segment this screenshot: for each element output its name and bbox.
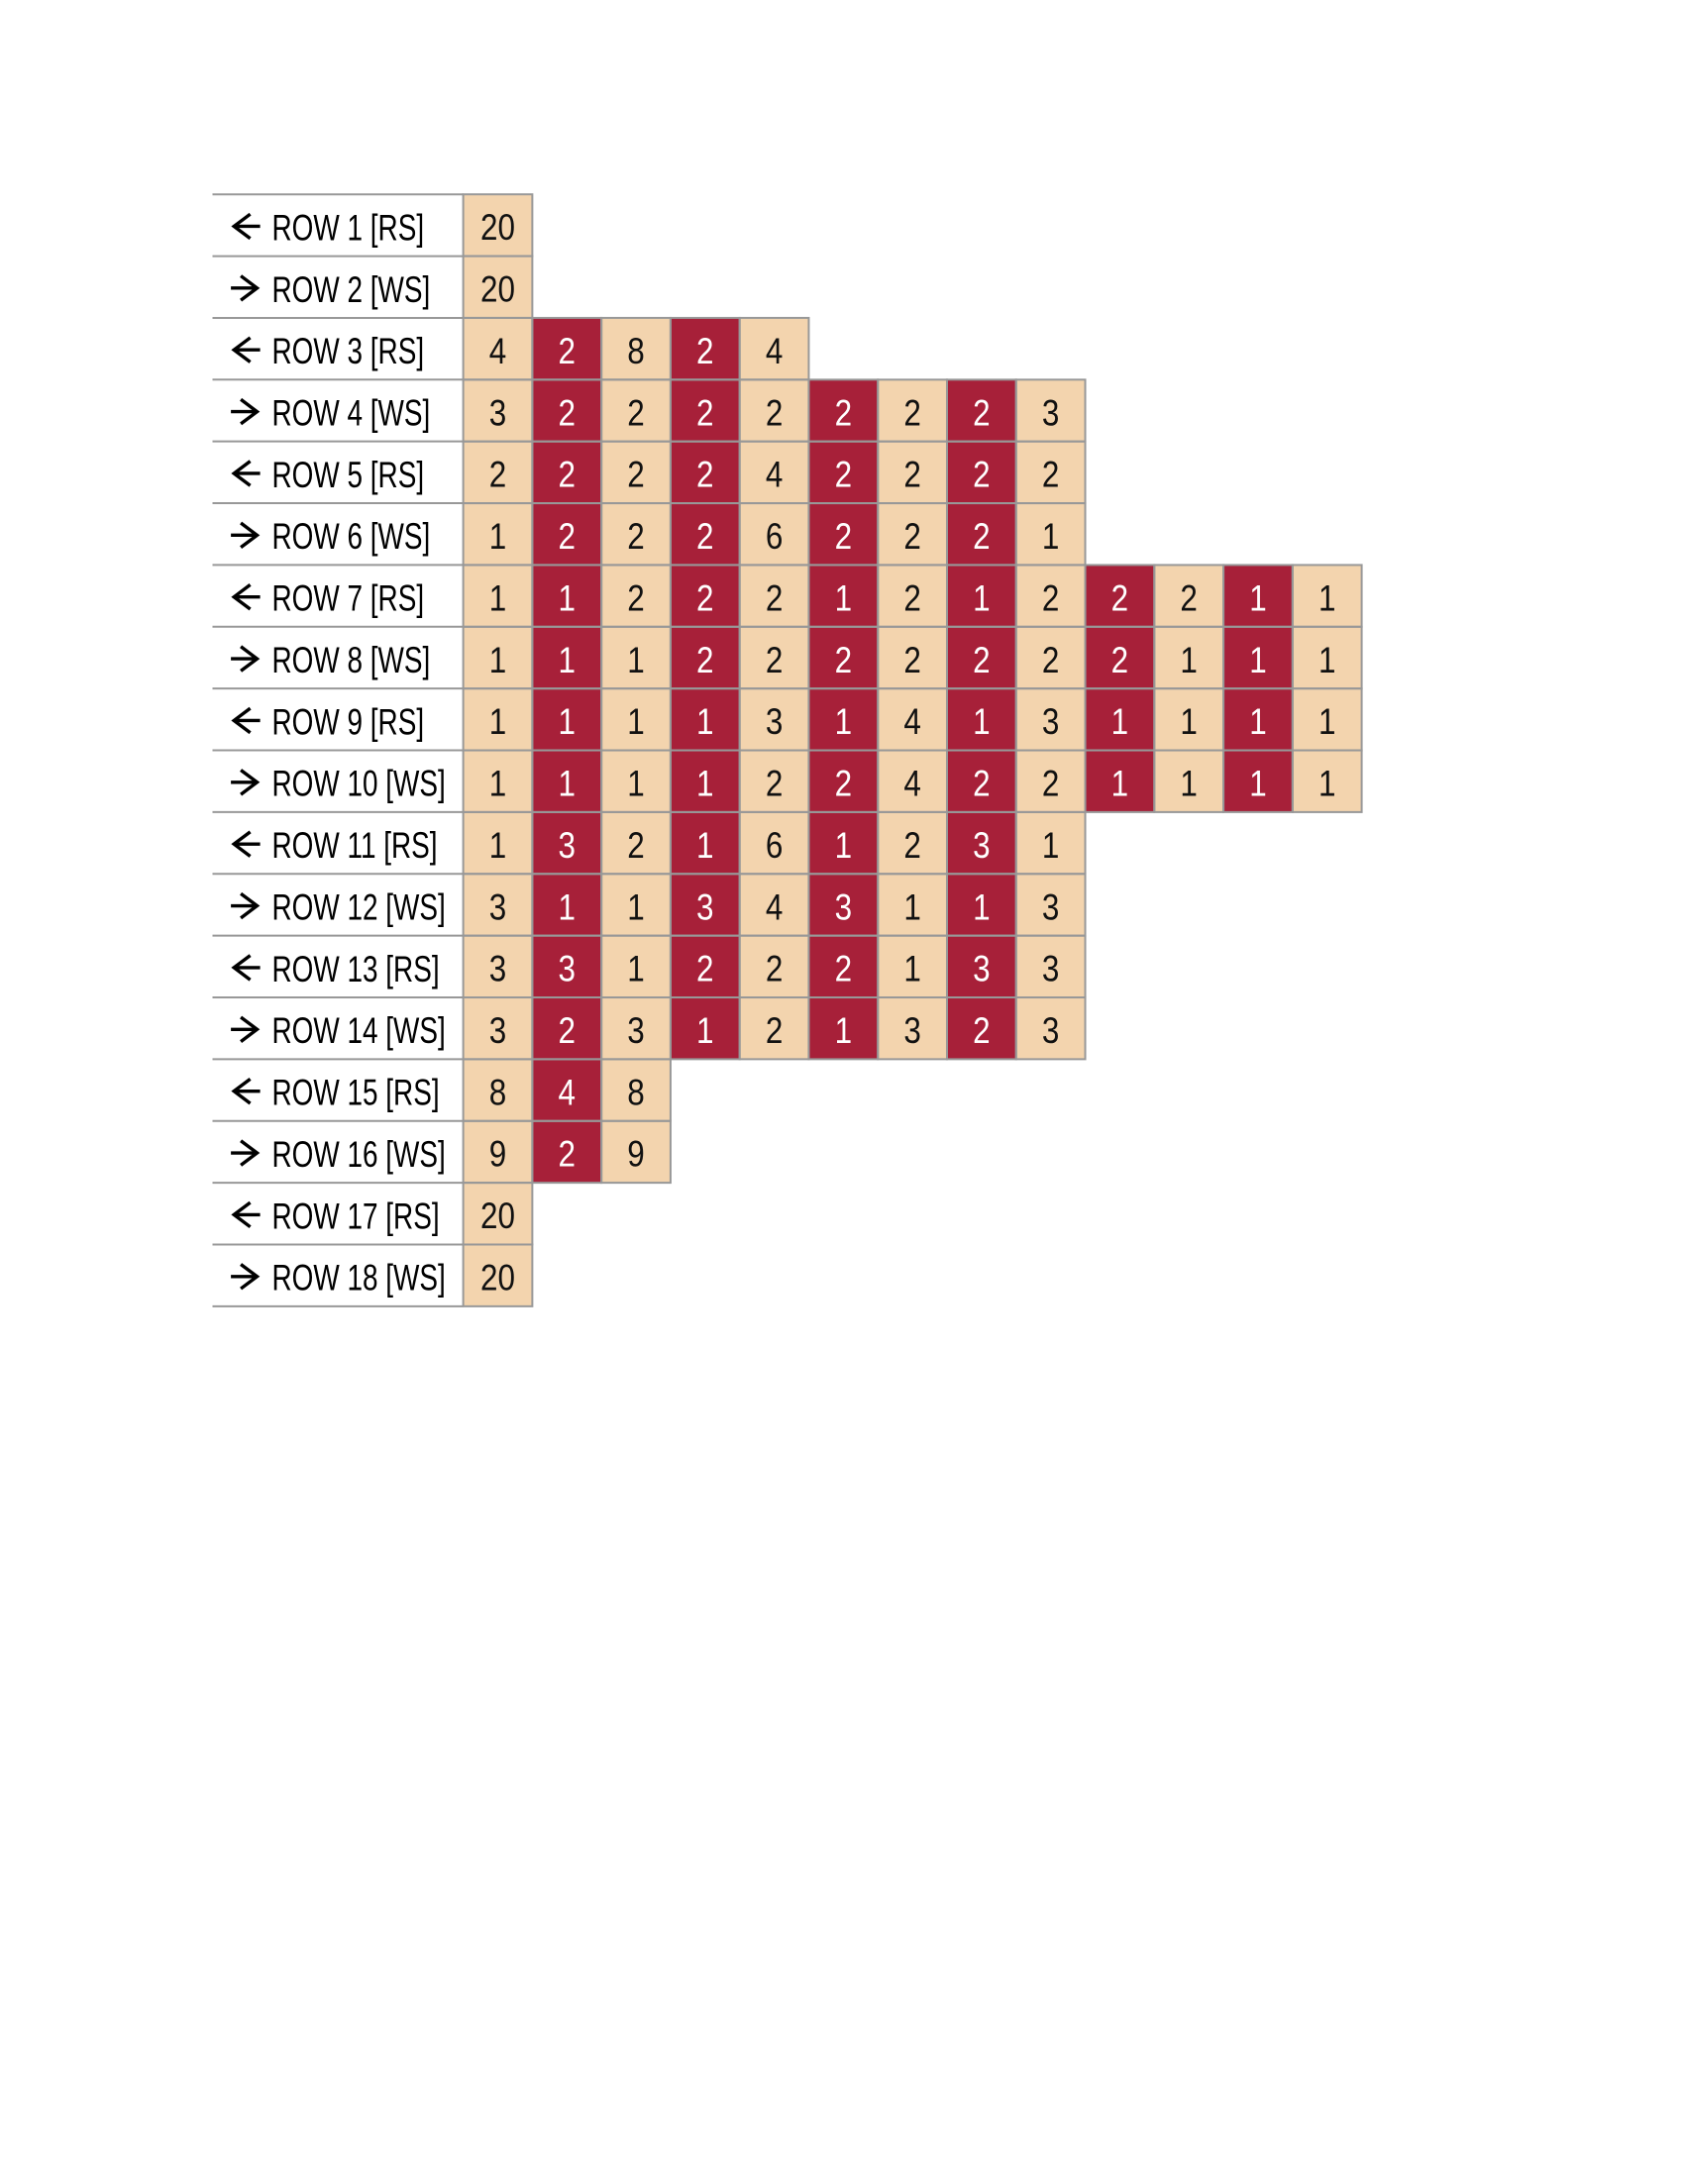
svg-text:2: 2: [903, 640, 920, 680]
svg-text:2: 2: [1111, 640, 1128, 680]
svg-text:1: 1: [1249, 640, 1266, 680]
svg-text:3: 3: [1042, 949, 1059, 989]
svg-text:2: 2: [766, 393, 783, 434]
svg-text:2: 2: [766, 949, 783, 989]
svg-text:2: 2: [627, 826, 644, 867]
svg-text:2: 2: [973, 455, 990, 495]
svg-text:ROW 5 [RS]: ROW 5 [RS]: [272, 454, 425, 495]
svg-text:1: 1: [1180, 764, 1197, 804]
svg-text:1: 1: [1249, 702, 1266, 743]
svg-text:3: 3: [559, 949, 576, 989]
svg-text:4: 4: [489, 332, 506, 372]
svg-text:2: 2: [627, 578, 644, 619]
svg-text:2: 2: [696, 393, 713, 434]
svg-text:2: 2: [973, 764, 990, 804]
svg-text:1: 1: [559, 764, 576, 804]
svg-text:3: 3: [973, 826, 990, 867]
svg-text:1: 1: [627, 640, 644, 680]
svg-text:1: 1: [1111, 702, 1128, 743]
svg-text:4: 4: [559, 1073, 576, 1113]
svg-text:ROW 18 [WS]: ROW 18 [WS]: [272, 1257, 446, 1299]
svg-text:3: 3: [696, 887, 713, 928]
svg-text:1: 1: [1111, 764, 1128, 804]
svg-text:2: 2: [559, 393, 576, 434]
svg-text:1: 1: [1042, 826, 1059, 867]
svg-text:8: 8: [489, 1073, 506, 1113]
svg-text:ROW 3 [RS]: ROW 3 [RS]: [272, 330, 425, 371]
svg-text:1: 1: [559, 578, 576, 619]
svg-text:1: 1: [489, 826, 506, 867]
svg-text:2: 2: [1042, 455, 1059, 495]
svg-text:2: 2: [696, 578, 713, 619]
svg-text:2: 2: [973, 393, 990, 434]
svg-text:3: 3: [1042, 393, 1059, 434]
svg-text:1: 1: [1318, 764, 1335, 804]
svg-text:ROW 10 [WS]: ROW 10 [WS]: [272, 763, 446, 804]
svg-text:1: 1: [627, 702, 644, 743]
svg-text:20: 20: [480, 1258, 515, 1299]
svg-text:2: 2: [696, 455, 713, 495]
svg-text:2: 2: [1042, 640, 1059, 680]
svg-text:3: 3: [489, 887, 506, 928]
svg-text:1: 1: [627, 949, 644, 989]
svg-text:2: 2: [903, 826, 920, 867]
svg-text:4: 4: [766, 887, 783, 928]
svg-text:3: 3: [489, 949, 506, 989]
svg-text:4: 4: [766, 332, 783, 372]
svg-text:3: 3: [766, 702, 783, 743]
svg-text:ROW 12 [WS]: ROW 12 [WS]: [272, 886, 446, 928]
svg-text:3: 3: [1042, 702, 1059, 743]
svg-text:1: 1: [973, 578, 990, 619]
svg-text:2: 2: [627, 393, 644, 434]
svg-text:3: 3: [489, 393, 506, 434]
svg-text:1: 1: [489, 578, 506, 619]
svg-text:1: 1: [973, 887, 990, 928]
svg-text:2: 2: [766, 1011, 783, 1052]
svg-text:ROW 16 [WS]: ROW 16 [WS]: [272, 1133, 446, 1175]
svg-text:ROW 14 [WS]: ROW 14 [WS]: [272, 1009, 446, 1051]
svg-text:1: 1: [489, 764, 506, 804]
svg-text:ROW 13 [RS]: ROW 13 [RS]: [272, 948, 440, 989]
svg-text:2: 2: [835, 455, 852, 495]
svg-text:1: 1: [835, 826, 852, 867]
svg-text:2: 2: [559, 332, 576, 372]
svg-text:4: 4: [903, 764, 920, 804]
svg-text:1: 1: [903, 887, 920, 928]
svg-text:1: 1: [627, 764, 644, 804]
svg-text:1: 1: [1318, 640, 1335, 680]
svg-text:ROW 15 [RS]: ROW 15 [RS]: [272, 1072, 440, 1113]
svg-text:ROW 4 [WS]: ROW 4 [WS]: [272, 392, 431, 434]
svg-text:6: 6: [766, 517, 783, 558]
svg-text:8: 8: [627, 332, 644, 372]
svg-text:3: 3: [489, 1011, 506, 1052]
svg-text:2: 2: [559, 517, 576, 558]
svg-text:9: 9: [489, 1134, 506, 1175]
svg-text:2: 2: [627, 455, 644, 495]
svg-text:2: 2: [903, 455, 920, 495]
svg-text:1: 1: [1180, 640, 1197, 680]
svg-text:8: 8: [627, 1073, 644, 1113]
svg-text:2: 2: [973, 640, 990, 680]
svg-text:2: 2: [835, 764, 852, 804]
svg-text:2: 2: [903, 517, 920, 558]
svg-text:ROW 9 [RS]: ROW 9 [RS]: [272, 700, 425, 742]
svg-text:4: 4: [903, 702, 920, 743]
svg-text:1: 1: [1180, 702, 1197, 743]
svg-text:ROW 17 [RS]: ROW 17 [RS]: [272, 1195, 440, 1236]
svg-text:6: 6: [766, 826, 783, 867]
svg-text:2: 2: [696, 640, 713, 680]
svg-text:1: 1: [696, 1011, 713, 1052]
svg-text:1: 1: [1249, 578, 1266, 619]
svg-text:2: 2: [696, 949, 713, 989]
svg-text:1: 1: [835, 1011, 852, 1052]
svg-text:1: 1: [1249, 764, 1266, 804]
svg-text:ROW 1 [RS]: ROW 1 [RS]: [272, 207, 425, 249]
svg-text:1: 1: [696, 702, 713, 743]
svg-text:2: 2: [973, 1011, 990, 1052]
svg-text:2: 2: [559, 455, 576, 495]
svg-text:1: 1: [1042, 517, 1059, 558]
svg-text:2: 2: [559, 1011, 576, 1052]
svg-text:2: 2: [696, 517, 713, 558]
svg-text:2: 2: [559, 1134, 576, 1175]
svg-text:ROW 7 [RS]: ROW 7 [RS]: [272, 577, 425, 619]
svg-text:3: 3: [835, 887, 852, 928]
svg-text:3: 3: [559, 826, 576, 867]
svg-text:2: 2: [1111, 578, 1128, 619]
svg-text:9: 9: [627, 1134, 644, 1175]
svg-text:1: 1: [559, 640, 576, 680]
svg-text:2: 2: [766, 640, 783, 680]
svg-text:2: 2: [1180, 578, 1197, 619]
svg-text:2: 2: [835, 517, 852, 558]
svg-text:1: 1: [1318, 578, 1335, 619]
svg-text:2: 2: [696, 332, 713, 372]
svg-text:20: 20: [480, 269, 515, 310]
svg-text:1: 1: [835, 578, 852, 619]
svg-text:1: 1: [559, 702, 576, 743]
svg-text:1: 1: [489, 640, 506, 680]
svg-text:2: 2: [766, 578, 783, 619]
svg-text:2: 2: [1042, 764, 1059, 804]
svg-text:1: 1: [1318, 702, 1335, 743]
svg-text:2: 2: [835, 640, 852, 680]
svg-text:2: 2: [627, 517, 644, 558]
svg-text:1: 1: [489, 517, 506, 558]
svg-text:20: 20: [480, 208, 515, 249]
svg-text:3: 3: [627, 1011, 644, 1052]
svg-text:2: 2: [489, 455, 506, 495]
svg-text:ROW 6 [WS]: ROW 6 [WS]: [272, 515, 431, 557]
svg-text:1: 1: [973, 702, 990, 743]
svg-text:2: 2: [835, 949, 852, 989]
svg-text:2: 2: [903, 393, 920, 434]
svg-text:1: 1: [903, 949, 920, 989]
svg-text:ROW 8 [WS]: ROW 8 [WS]: [272, 639, 431, 680]
svg-text:2: 2: [903, 578, 920, 619]
svg-text:1: 1: [835, 702, 852, 743]
svg-text:2: 2: [1042, 578, 1059, 619]
svg-text:ROW 2 [WS]: ROW 2 [WS]: [272, 268, 431, 310]
svg-text:3: 3: [903, 1011, 920, 1052]
svg-text:1: 1: [627, 887, 644, 928]
svg-text:20: 20: [480, 1196, 515, 1237]
svg-text:1: 1: [696, 764, 713, 804]
svg-text:2: 2: [766, 764, 783, 804]
svg-text:2: 2: [835, 393, 852, 434]
svg-text:4: 4: [766, 455, 783, 495]
svg-text:ROW 11 [RS]: ROW 11 [RS]: [272, 824, 438, 866]
svg-text:1: 1: [489, 702, 506, 743]
svg-text:1: 1: [696, 826, 713, 867]
svg-text:3: 3: [973, 949, 990, 989]
svg-text:2: 2: [973, 517, 990, 558]
svg-text:3: 3: [1042, 1011, 1059, 1052]
svg-text:3: 3: [1042, 887, 1059, 928]
svg-text:1: 1: [559, 887, 576, 928]
